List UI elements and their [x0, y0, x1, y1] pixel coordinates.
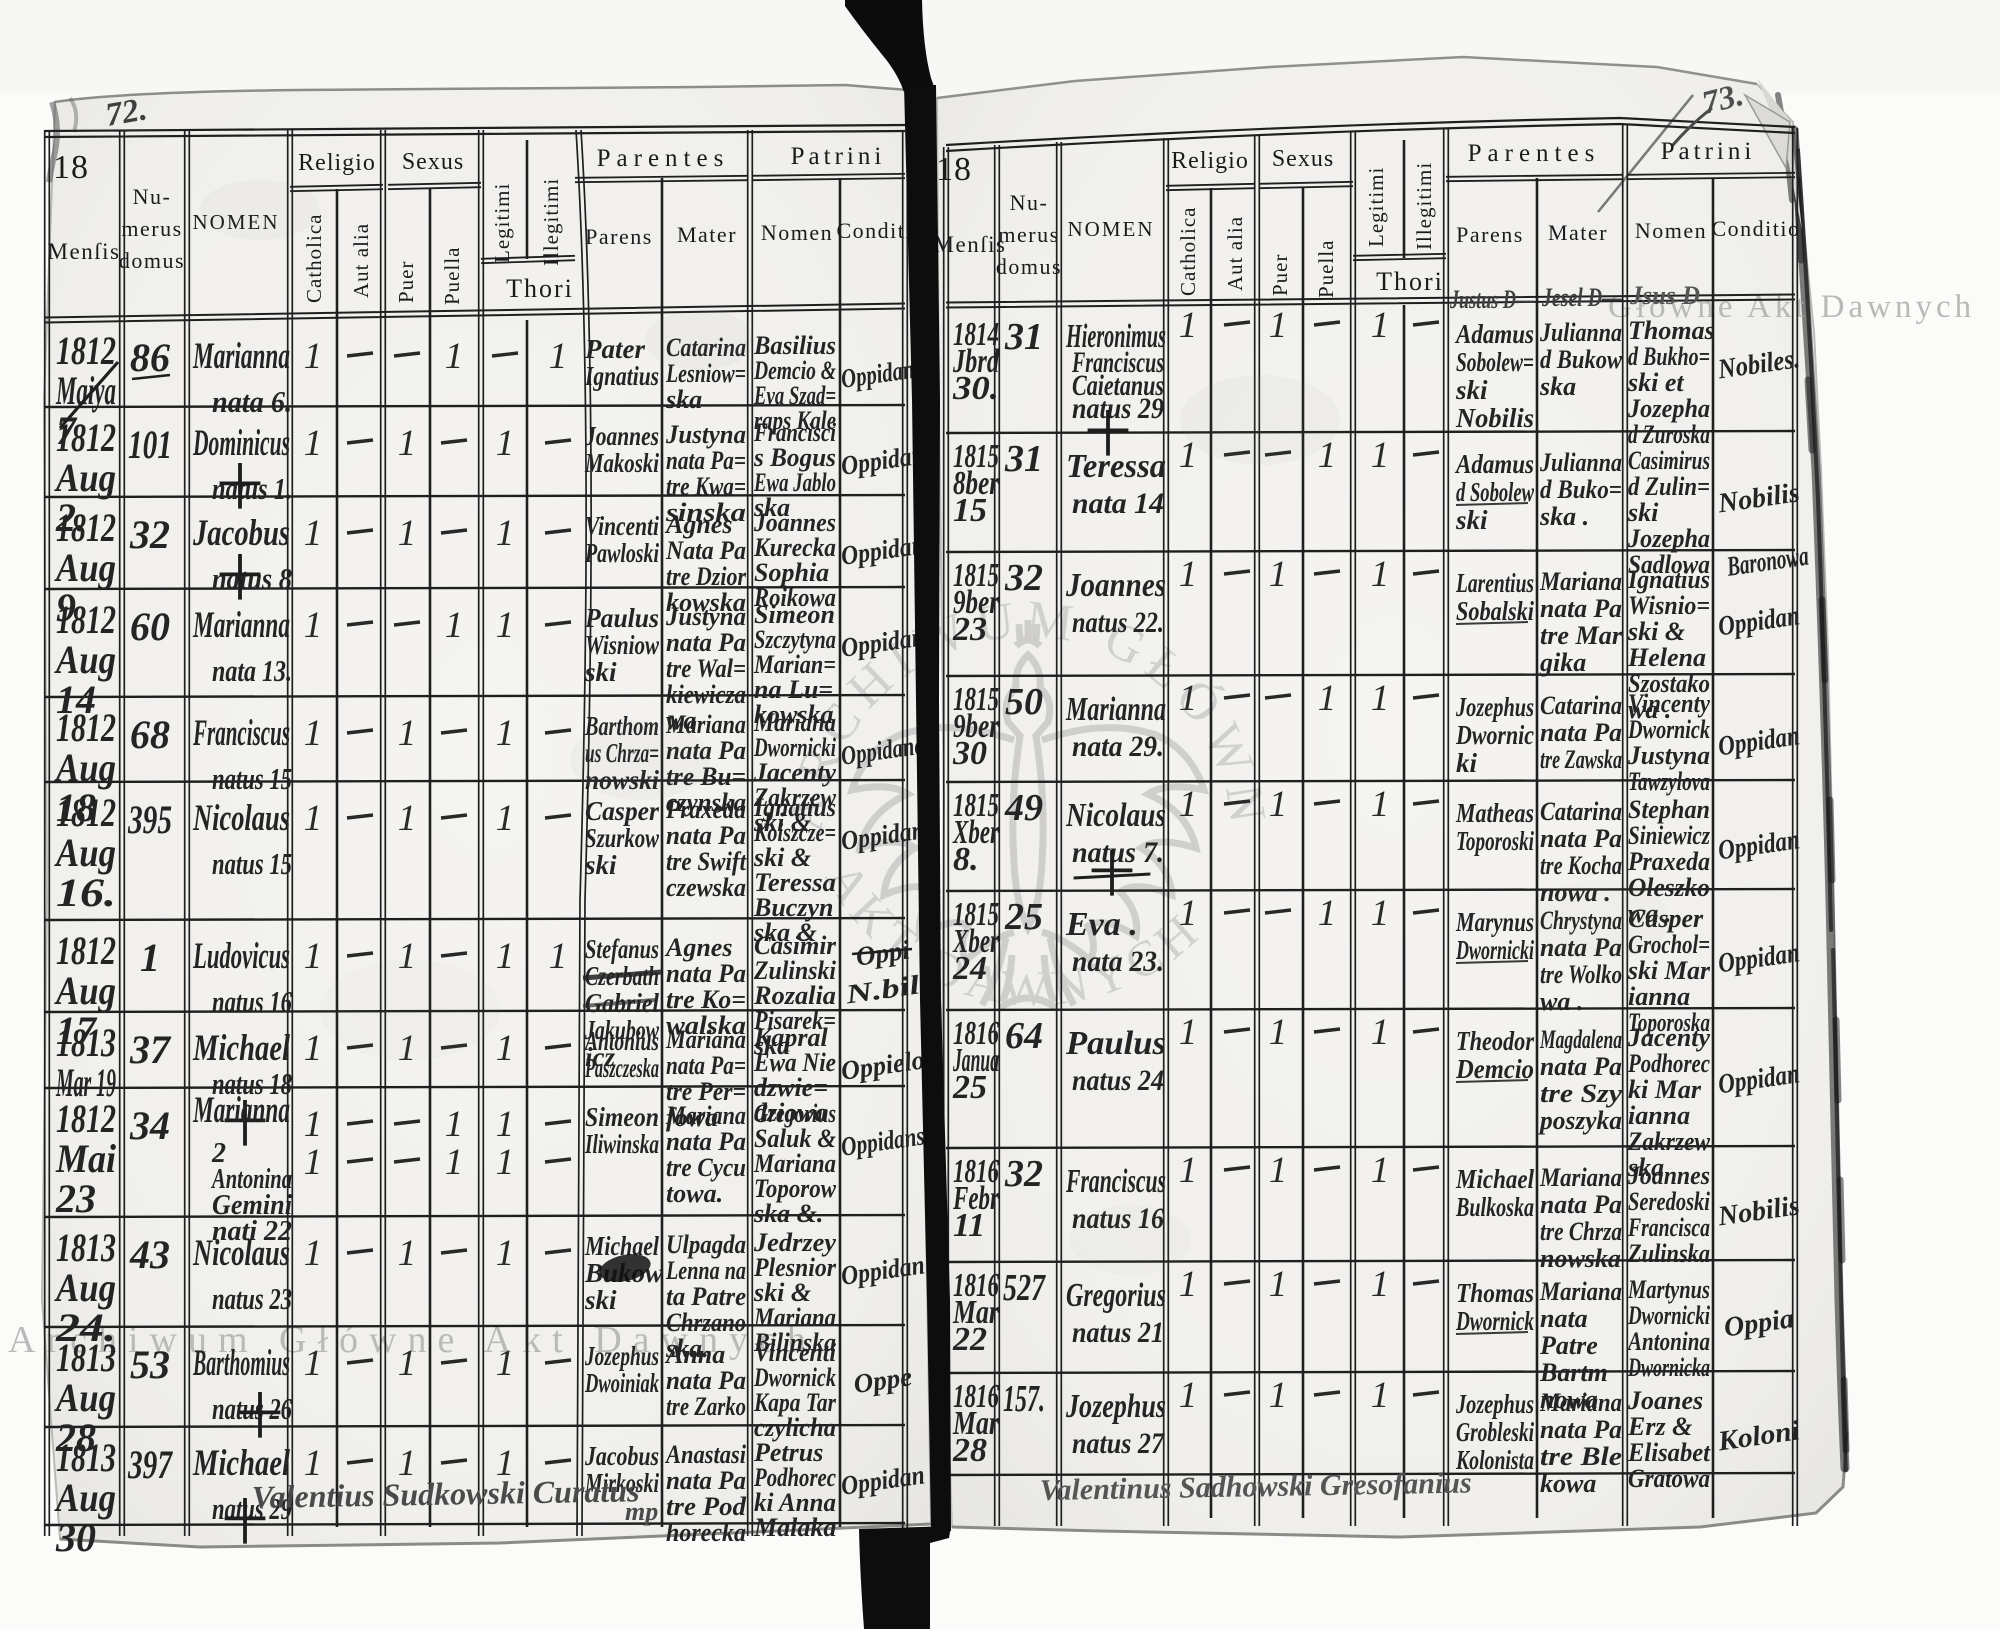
- svg-text:1813: 1813: [56, 1225, 116, 1270]
- svg-text:nata 23.: nata 23.: [1072, 945, 1164, 978]
- svg-text:Gabriel: Gabriel: [585, 988, 659, 1018]
- svg-text:natus 29: natus 29: [1072, 392, 1164, 425]
- svg-text:ta Patre: ta Patre: [666, 1282, 746, 1311]
- svg-text:1: 1: [304, 1233, 323, 1274]
- svg-text:Francisca: Francisca: [1627, 1213, 1710, 1242]
- svg-text:natus 15: natus 15: [212, 846, 292, 881]
- svg-text:Menſis: Menſis: [934, 232, 1007, 257]
- svg-text:Mariana: Mariana: [1539, 1163, 1622, 1192]
- svg-text:1: 1: [1318, 893, 1337, 934]
- svg-text:31: 31: [1004, 438, 1043, 480]
- svg-text:1: 1: [496, 1028, 515, 1069]
- svg-text:1: 1: [496, 936, 515, 977]
- svg-text:1: 1: [1179, 1012, 1198, 1053]
- svg-text:Matheas: Matheas: [1455, 798, 1534, 828]
- svg-text:Michael: Michael: [1455, 1164, 1534, 1194]
- svg-text:32: 32: [129, 512, 170, 557]
- svg-text:natus 8: natus 8: [212, 561, 292, 596]
- svg-text:1: 1: [496, 1142, 515, 1183]
- svg-text:Anastasi: Anastasi: [664, 1440, 746, 1469]
- svg-text:1: 1: [496, 423, 515, 464]
- svg-text:49: 49: [1004, 787, 1043, 829]
- svg-text:Paulus: Paulus: [1065, 1025, 1166, 1062]
- svg-text:22: 22: [952, 1321, 987, 1358]
- svg-text:Adamus: Adamus: [1454, 449, 1534, 479]
- svg-text:24: 24: [952, 950, 987, 987]
- svg-text:53: 53: [130, 1342, 170, 1387]
- svg-text:1: 1: [304, 713, 323, 754]
- svg-text:Podhorec: Podhorec: [1627, 1049, 1710, 1078]
- svg-text:18: 18: [936, 151, 972, 188]
- svg-text:397: 397: [127, 1442, 173, 1487]
- svg-text:Vincenty: Vincenty: [1628, 689, 1710, 718]
- svg-text:czewska: czewska: [666, 873, 746, 902]
- svg-text:1812: 1812: [56, 328, 116, 373]
- svg-text:16.: 16.: [56, 870, 116, 915]
- svg-text:Illegitimi: Illegitimi: [1412, 162, 1436, 250]
- svg-text:Ignatius: Ignatius: [584, 361, 659, 391]
- svg-text:Jozepha: Jozepha: [1627, 394, 1710, 423]
- svg-text:1: 1: [140, 935, 160, 980]
- svg-text:1813: 1813: [56, 1335, 116, 1380]
- svg-text:1: 1: [1371, 435, 1390, 476]
- svg-text:domus: domus: [119, 248, 185, 273]
- svg-text:15: 15: [953, 492, 987, 529]
- svg-text:nata Pa: nata Pa: [1540, 1190, 1622, 1219]
- svg-text:Aug: Aug: [53, 1265, 116, 1310]
- svg-text:tre Ble: tre Ble: [1540, 1442, 1622, 1471]
- svg-text:1: 1: [1179, 678, 1198, 719]
- svg-text:Mariana: Mariana: [1539, 567, 1622, 596]
- svg-text:Aug: Aug: [53, 830, 116, 875]
- svg-text:nata: nata: [1540, 1304, 1588, 1333]
- svg-text:Sobolew=: Sobolew=: [1456, 347, 1534, 377]
- svg-text:tre Cycu: tre Cycu: [666, 1153, 746, 1182]
- svg-text:Jacobus: Jacobus: [584, 1441, 659, 1471]
- svg-text:1: 1: [1269, 1264, 1288, 1305]
- svg-text:d Zuroska: d Zuroska: [1628, 420, 1710, 449]
- svg-text:tre Swift: tre Swift: [666, 847, 747, 876]
- svg-text:ski: ski: [584, 1285, 617, 1315]
- svg-text:tre Chrza: tre Chrza: [1540, 1217, 1622, 1246]
- svg-text:Malaka: Malaka: [753, 1513, 836, 1542]
- svg-text:Thomas: Thomas: [1628, 316, 1715, 345]
- svg-text:ski Mar: ski Mar: [1627, 956, 1711, 985]
- svg-text:Paszczeska: Paszczeska: [584, 1053, 659, 1083]
- svg-text:Gratowa: Gratowa: [1628, 1464, 1710, 1493]
- svg-text:tre Mar: tre Mar: [1540, 621, 1623, 650]
- svg-text:Casper: Casper: [585, 796, 659, 826]
- svg-text:Parens: Parens: [1456, 222, 1524, 247]
- svg-text:nata Pa: nata Pa: [1540, 1415, 1622, 1444]
- svg-text:nata 29.: nata 29.: [1072, 730, 1164, 763]
- svg-text:1: 1: [398, 423, 417, 464]
- svg-text:11: 11: [953, 1207, 985, 1244]
- svg-text:Puella: Puella: [440, 247, 464, 306]
- svg-text:1: 1: [1269, 784, 1288, 825]
- svg-text:1812: 1812: [56, 790, 116, 835]
- svg-text:Toporoski: Toporoski: [1456, 826, 1534, 856]
- svg-text:Marianna: Marianna: [192, 605, 290, 646]
- svg-text:Theodor: Theodor: [1456, 1026, 1534, 1056]
- svg-text:23: 23: [952, 611, 987, 648]
- svg-text:Magdalena: Magdalena: [1539, 1025, 1622, 1054]
- svg-text:8.: 8.: [953, 841, 979, 878]
- svg-text:ska .: ska .: [1539, 502, 1589, 531]
- svg-text:1812: 1812: [56, 928, 116, 973]
- svg-text:Nu-: Nu-: [1010, 190, 1049, 215]
- svg-text:natus 27: natus 27: [1072, 1427, 1165, 1460]
- svg-text:Praxeda: Praxeda: [665, 795, 746, 824]
- svg-text:Justyna: Justyna: [1627, 741, 1710, 770]
- svg-text:natus 15: natus 15: [212, 761, 292, 796]
- svg-text:34: 34: [129, 1103, 170, 1148]
- svg-text:Larentius: Larentius: [1455, 568, 1534, 598]
- svg-text:1: 1: [398, 1343, 417, 1384]
- svg-text:1: 1: [1179, 1264, 1198, 1305]
- svg-text:natus 22.: natus 22.: [1072, 606, 1164, 639]
- svg-text:Jozephus: Jozephus: [584, 1341, 659, 1371]
- svg-text:43: 43: [129, 1232, 170, 1277]
- svg-text:tre Wolko: tre Wolko: [1540, 960, 1622, 989]
- svg-text:tre Zawska: tre Zawska: [1540, 745, 1622, 774]
- svg-text:395: 395: [127, 797, 172, 842]
- svg-text:Patre: Patre: [1539, 1331, 1598, 1360]
- svg-text:d Buko=: d Buko=: [1540, 475, 1622, 504]
- svg-text:nata Pa=: nata Pa=: [666, 1051, 746, 1080]
- svg-text:Thori: Thori: [1376, 267, 1444, 296]
- svg-text:1: 1: [1269, 1150, 1288, 1191]
- svg-text:Marianna: Marianna: [192, 1090, 290, 1131]
- svg-text:Zakrzew: Zakrzew: [1627, 1127, 1710, 1156]
- svg-text:1: 1: [496, 713, 515, 754]
- svg-text:1: 1: [1269, 1012, 1288, 1053]
- svg-text:Religio: Religio: [1171, 148, 1249, 174]
- svg-text:527: 527: [1003, 1267, 1046, 1309]
- svg-text:Vincenti: Vincenti: [585, 511, 659, 541]
- svg-text:Praxeda: Praxeda: [1627, 847, 1710, 876]
- svg-text:nata 14: nata 14: [1072, 487, 1164, 520]
- svg-text:ska: ska: [665, 385, 702, 414]
- svg-text:Agnes: Agnes: [664, 933, 732, 962]
- svg-text:Puella: Puella: [1314, 240, 1338, 299]
- svg-text:Mariana: Mariana: [665, 1025, 746, 1054]
- svg-text:Aug: Aug: [53, 637, 116, 682]
- svg-text:Legitimi: Legitimi: [490, 183, 514, 263]
- svg-text:Aug: Aug: [53, 745, 116, 790]
- svg-text:nowska: nowska: [1540, 1244, 1621, 1273]
- svg-text:1: 1: [1179, 893, 1198, 934]
- svg-text:merus: merus: [998, 222, 1059, 247]
- svg-text:ski: ski: [1455, 505, 1488, 535]
- svg-text:Parens: Parens: [585, 224, 653, 249]
- svg-text:25: 25: [1004, 896, 1043, 938]
- svg-text:Jozepha: Jozepha: [1627, 524, 1710, 553]
- svg-text:1: 1: [1371, 305, 1390, 346]
- svg-text:Aut alia: Aut alia: [1223, 216, 1247, 291]
- svg-text:Grobleski: Grobleski: [1456, 1417, 1534, 1447]
- svg-text:Stefanus: Stefanus: [585, 934, 659, 964]
- svg-text:Makoski: Makoski: [584, 448, 659, 478]
- svg-text:1812: 1812: [56, 597, 116, 642]
- svg-text:nata Pa: nata Pa: [1540, 1052, 1622, 1081]
- svg-text:Ludovicus: Ludovicus: [192, 936, 290, 977]
- svg-text:nata Pa: nata Pa: [1540, 824, 1622, 853]
- svg-text:157.: 157.: [1003, 1378, 1045, 1420]
- svg-text:kiewicza: kiewicza: [666, 680, 746, 709]
- svg-text:30: 30: [952, 735, 987, 772]
- svg-text:37: 37: [129, 1027, 172, 1072]
- svg-text:Pater: Pater: [584, 334, 645, 364]
- svg-text:Adamus: Adamus: [1454, 319, 1534, 349]
- svg-text:1: 1: [1318, 678, 1337, 719]
- svg-text:1812: 1812: [56, 705, 116, 750]
- svg-text:Anna: Anna: [664, 1340, 725, 1369]
- svg-text:Nomen: Nomen: [761, 220, 833, 245]
- svg-text:1: 1: [496, 798, 515, 839]
- svg-text:Antonina: Antonina: [1626, 1327, 1710, 1356]
- svg-text:1: 1: [1179, 1375, 1198, 1416]
- svg-text:merus: merus: [121, 216, 182, 241]
- svg-text:Seredoski: Seredoski: [1628, 1187, 1711, 1216]
- svg-text:ianna: ianna: [1628, 982, 1690, 1011]
- svg-text:Gregorius: Gregorius: [1066, 1277, 1166, 1314]
- svg-text:Dwornicka: Dwornicka: [1627, 1353, 1710, 1382]
- svg-text:Jozephus: Jozephus: [1455, 1389, 1534, 1419]
- svg-text:Joannes: Joannes: [1065, 567, 1166, 604]
- svg-text:Barthomius: Barthomius: [192, 1343, 290, 1384]
- svg-text:Teressa: Teressa: [1066, 448, 1166, 485]
- svg-text:1: 1: [304, 1142, 323, 1183]
- svg-text:Sexus: Sexus: [402, 149, 464, 175]
- svg-text:Justus D—: Justus D—: [1449, 285, 1534, 314]
- svg-text:nata 6.: nata 6.: [212, 384, 292, 419]
- svg-text:Franciscus: Franciscus: [1065, 1163, 1166, 1200]
- svg-text:Joannes: Joannes: [1627, 1161, 1710, 1190]
- svg-text:1: 1: [1179, 1150, 1198, 1191]
- svg-text:Jozephus: Jozephus: [1065, 1388, 1166, 1425]
- svg-text:Thomas: Thomas: [1456, 1278, 1534, 1308]
- svg-text:Zulinska: Zulinska: [1627, 1239, 1710, 1268]
- svg-text:Catarina: Catarina: [1540, 797, 1622, 826]
- svg-text:Mater: Mater: [677, 222, 737, 247]
- svg-text:Jesel D—: Jesel D—: [1541, 283, 1622, 312]
- svg-text:Marianna: Marianna: [1065, 691, 1166, 728]
- svg-text:Puer: Puer: [1268, 254, 1292, 297]
- svg-text:Conditio: Conditio: [1711, 216, 1800, 241]
- svg-text:ska: ska: [1539, 372, 1576, 401]
- svg-text:tre Ko=: tre Ko=: [666, 985, 746, 1014]
- svg-text:Julianna: Julianna: [1539, 448, 1622, 477]
- svg-text:Bartm: Bartm: [1539, 1358, 1608, 1387]
- svg-text:Jsus D: Jsus D: [1629, 281, 1700, 310]
- svg-text:Jozephus: Jozephus: [1455, 692, 1534, 722]
- svg-text:natus 16: natus 16: [212, 984, 292, 1019]
- svg-text:31: 31: [1004, 316, 1043, 358]
- svg-text:ski: ski: [1455, 375, 1488, 405]
- svg-text:Jacenty: Jacenty: [1627, 1023, 1710, 1052]
- svg-text:ski: ski: [1627, 498, 1659, 527]
- svg-text:d Zulin=: d Zulin=: [1628, 472, 1710, 501]
- svg-text:nata Pa: nata Pa: [1540, 718, 1622, 747]
- svg-text:nata Pa: nata Pa: [666, 1127, 746, 1156]
- svg-text:Dwornicki: Dwornicki: [1627, 1301, 1710, 1330]
- svg-text:32: 32: [1004, 1153, 1043, 1195]
- svg-text:Martynus: Martynus: [1627, 1275, 1710, 1304]
- svg-text:Pawloski: Pawloski: [584, 538, 659, 568]
- svg-text:60: 60: [130, 604, 170, 649]
- svg-text:86: 86: [130, 335, 170, 380]
- svg-text:1: 1: [304, 605, 323, 646]
- svg-text:Mater: Mater: [1548, 220, 1608, 245]
- svg-text:1: 1: [1179, 784, 1198, 825]
- svg-text:1: 1: [445, 1142, 464, 1183]
- svg-text:kowa: kowa: [1540, 1469, 1596, 1498]
- svg-text:1812: 1812: [56, 1096, 116, 1141]
- svg-text:25: 25: [952, 1069, 987, 1106]
- svg-text:Aut alia: Aut alia: [349, 223, 373, 298]
- svg-text:Joannes: Joannes: [584, 421, 659, 451]
- svg-text:nata Pa: nata Pa: [666, 628, 746, 657]
- svg-text:Dwornic: Dwornic: [1455, 720, 1534, 750]
- svg-text:Nata Pa: Nata Pa: [665, 536, 746, 565]
- svg-text:1: 1: [398, 1233, 417, 1274]
- svg-text:tre Pod: tre Pod: [666, 1492, 747, 1521]
- svg-text:1: 1: [1269, 554, 1288, 595]
- svg-text:Aug: Aug: [53, 1375, 116, 1420]
- svg-text:1: 1: [304, 1028, 323, 1069]
- svg-text:tre Dzior: tre Dzior: [666, 562, 747, 591]
- svg-text:Stephan: Stephan: [1628, 795, 1710, 824]
- svg-text:101: 101: [128, 422, 172, 467]
- svg-text:poszyka: poszyka: [1538, 1106, 1622, 1135]
- svg-text:1: 1: [1371, 554, 1390, 595]
- svg-text:Elisabet: Elisabet: [1627, 1438, 1711, 1467]
- svg-text:1: 1: [496, 1233, 515, 1274]
- svg-text:23: 23: [55, 1176, 96, 1221]
- svg-text:1: 1: [304, 1343, 323, 1384]
- svg-text:Paulus: Paulus: [584, 603, 659, 633]
- svg-text:nata Pa: nata Pa: [666, 1466, 746, 1495]
- svg-text:Agnes: Agnes: [664, 510, 732, 539]
- svg-text:nata Pa: nata Pa: [666, 959, 746, 988]
- svg-text:1812: 1812: [56, 415, 116, 460]
- svg-text:30: 30: [55, 1515, 96, 1560]
- svg-text:mp: mp: [625, 1497, 658, 1526]
- svg-text:Menſis: Menſis: [48, 239, 121, 264]
- svg-text:Bulkoska: Bulkoska: [1455, 1192, 1534, 1222]
- svg-text:Casimirus: Casimirus: [1628, 446, 1710, 475]
- svg-text:1: 1: [1371, 893, 1390, 934]
- svg-text:1: 1: [549, 336, 568, 377]
- svg-text:Antonius: Antonius: [584, 1026, 659, 1056]
- svg-text:NOMEN: NOMEN: [1068, 217, 1155, 241]
- svg-text:Mai: Mai: [55, 1136, 116, 1181]
- svg-text:1: 1: [1371, 1012, 1390, 1053]
- svg-text:Religio: Religio: [298, 150, 376, 176]
- svg-text:1: 1: [496, 1104, 515, 1145]
- svg-text:1: 1: [445, 605, 464, 646]
- svg-text:64: 64: [1005, 1015, 1043, 1057]
- svg-text:Catarina: Catarina: [1540, 691, 1622, 720]
- svg-text:Wisnio=: Wisnio=: [1628, 591, 1710, 620]
- svg-text:1: 1: [445, 336, 464, 377]
- svg-text:tre Wal=: tre Wal=: [666, 654, 746, 683]
- svg-text:Aug: Aug: [53, 545, 116, 590]
- svg-text:1: 1: [1371, 784, 1390, 825]
- svg-text:Catholica: Catholica: [1176, 207, 1200, 296]
- svg-text:ki Mar: ki Mar: [1628, 1075, 1702, 1104]
- svg-text:Justyna: Justyna: [665, 602, 746, 631]
- svg-text:Patrini: Patrini: [791, 143, 886, 170]
- svg-text:1: 1: [1371, 1150, 1390, 1191]
- svg-text:natus 1.: natus 1.: [212, 471, 292, 506]
- svg-text:Nicolaus: Nicolaus: [192, 798, 290, 839]
- svg-text:Chrzano: Chrzano: [666, 1308, 746, 1337]
- svg-text:towa.: towa.: [666, 1179, 723, 1208]
- svg-text:natus 26: natus 26: [212, 1391, 292, 1426]
- svg-text:Szurkow: Szurkow: [585, 823, 660, 853]
- svg-text:Lenna na: Lenna na: [665, 1256, 746, 1285]
- svg-text:Aug: Aug: [53, 455, 116, 500]
- svg-text:natus 21: natus 21: [1072, 1316, 1164, 1349]
- svg-text:Parentes: Parentes: [1468, 140, 1601, 167]
- svg-text:1: 1: [1371, 1264, 1390, 1305]
- svg-text:1: 1: [1371, 1375, 1390, 1416]
- svg-text:1813: 1813: [56, 1435, 116, 1480]
- svg-text:1: 1: [398, 513, 417, 554]
- svg-text:1: 1: [304, 336, 323, 377]
- svg-text:Aug: Aug: [53, 1475, 116, 1520]
- svg-text:1: 1: [398, 798, 417, 839]
- svg-text:1: 1: [496, 513, 515, 554]
- svg-text:1812: 1812: [56, 505, 116, 550]
- svg-text:Mariana: Mariana: [665, 1101, 746, 1130]
- svg-text:Erz &: Erz &: [1627, 1412, 1692, 1441]
- svg-text:72.: 72.: [103, 91, 150, 134]
- svg-text:Helena: Helena: [1627, 643, 1706, 672]
- svg-text:1: 1: [304, 936, 323, 977]
- svg-text:Mariana: Mariana: [1539, 1277, 1622, 1306]
- svg-text:Jacobus: Jacobus: [192, 513, 290, 554]
- svg-text:ski: ski: [584, 850, 617, 880]
- svg-text:Sexus: Sexus: [1272, 146, 1334, 172]
- svg-text:gika: gika: [1539, 648, 1586, 677]
- svg-text:30.: 30.: [952, 370, 999, 407]
- svg-text:Dwoiniak: Dwoiniak: [584, 1368, 659, 1398]
- svg-text:nata Pa: nata Pa: [1540, 594, 1622, 623]
- svg-text:Ignatius: Ignatius: [1627, 565, 1710, 594]
- svg-text:Joanes: Joanes: [1627, 1386, 1703, 1415]
- svg-text:1: 1: [304, 798, 323, 839]
- svg-text:nata Pa=: nata Pa=: [666, 446, 746, 475]
- svg-text:Dwornick: Dwornick: [1627, 715, 1710, 744]
- svg-text:1: 1: [304, 1104, 323, 1145]
- svg-text:Illegitimi: Illegitimi: [539, 178, 563, 266]
- svg-text:Justyna: Justyna: [665, 420, 746, 449]
- svg-text:1: 1: [304, 513, 323, 554]
- svg-text:Parentes: Parentes: [597, 145, 730, 172]
- svg-text:1: 1: [445, 1104, 464, 1145]
- svg-text:1: 1: [1179, 305, 1198, 346]
- svg-text:1: 1: [1269, 1375, 1288, 1416]
- svg-text:Nicolaus: Nicolaus: [192, 1233, 290, 1274]
- svg-text:ski et: ski et: [1627, 368, 1684, 397]
- svg-text:Dominicus: Dominicus: [192, 423, 290, 464]
- svg-text:Franciscus: Franciscus: [192, 713, 290, 754]
- svg-text:Tawzylova: Tawzylova: [1628, 767, 1710, 796]
- svg-text:Aug: Aug: [53, 968, 116, 1013]
